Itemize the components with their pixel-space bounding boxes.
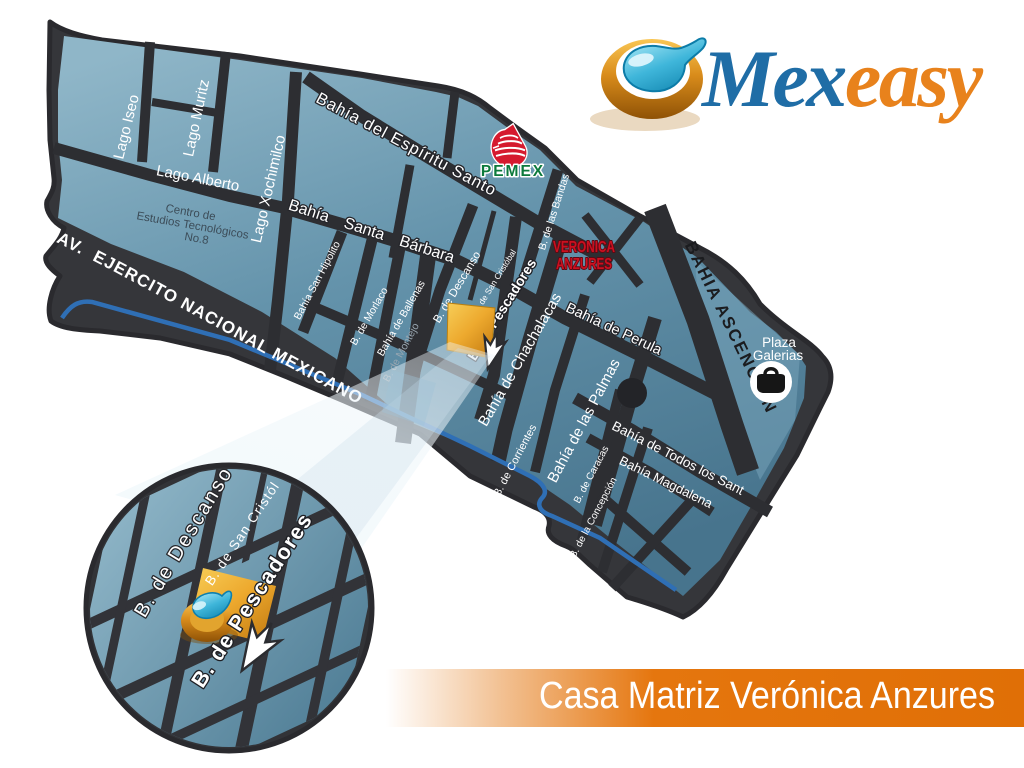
svg-text:PEMEX: PEMEX xyxy=(481,163,545,180)
svg-text:VERONICA: VERONICA xyxy=(553,239,615,256)
svg-text:ANZURES: ANZURES xyxy=(556,256,612,273)
svg-text:Galerias: Galerias xyxy=(753,348,804,363)
svg-text:Mexeasy: Mexeasy xyxy=(700,33,984,124)
svg-text:Casa Matriz Verónica Anzures: Casa Matriz Verónica Anzures xyxy=(539,675,995,717)
